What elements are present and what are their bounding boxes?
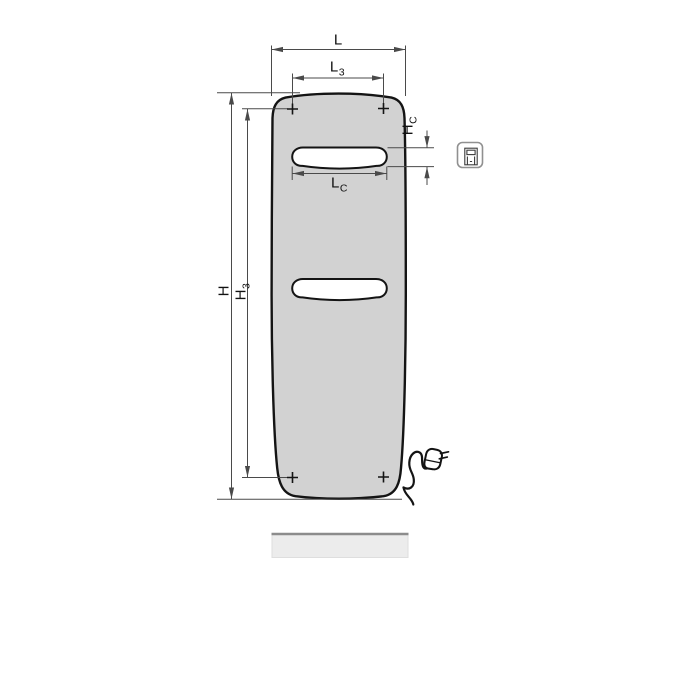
power-cable-tail <box>404 488 414 505</box>
dim-label-overall-height: H <box>217 286 232 297</box>
dim-label-sub: C <box>407 116 419 124</box>
dim-label-sub: C <box>340 182 348 194</box>
dim-label-overall-width: L <box>334 33 342 48</box>
drawing-linework <box>0 0 700 700</box>
electric-connection-icon <box>458 143 483 168</box>
dim-label-slot-length: LC <box>331 176 347 191</box>
dim-label-main: H <box>400 124 417 135</box>
dim-label-slot-height: HC <box>401 117 416 135</box>
dim-label-main: L <box>334 32 342 49</box>
floor-shadow <box>272 534 409 558</box>
dim-label-mounting-height: H3 <box>234 284 249 301</box>
dim-label-mounting-width: L3 <box>330 60 344 75</box>
drawing-canvas: L L3 LC H H3 HC <box>0 0 700 700</box>
top-slot <box>292 148 387 169</box>
middle-slot <box>292 279 387 300</box>
floor-shadow-fill <box>272 535 408 558</box>
power-cable-and-plug <box>404 449 449 505</box>
dim-label-main: H <box>216 286 233 297</box>
dim-label-sub: 3 <box>339 66 345 78</box>
dim-label-main: L <box>330 59 338 76</box>
dim-label-main: L <box>331 175 339 192</box>
dim-label-sub: 3 <box>240 283 252 289</box>
dim-label-main: H <box>233 290 250 301</box>
